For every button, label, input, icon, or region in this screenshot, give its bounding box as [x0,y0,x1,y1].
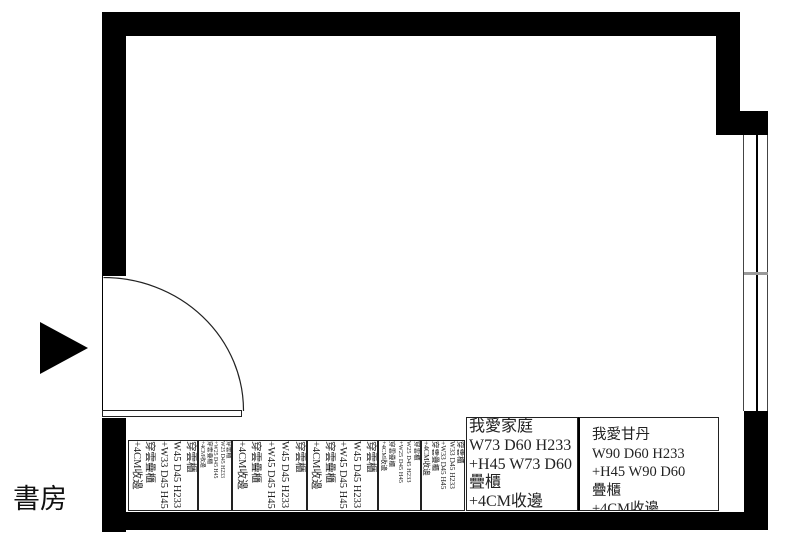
cabinet-label-line: +W25 D45 H45 [212,441,218,510]
cabinet-label-line: +4CM收邊 [422,441,430,510]
cabinet-label-line: +4CM收邊 [469,493,577,511]
cabinet-label-line: +H45 W73 D60 [469,456,577,475]
door-swing-arc [103,277,245,412]
cabinet-label-line: +H45 W90 D60 [592,463,718,482]
cabinet-label-line: 穿雲疊櫃 [322,441,336,510]
cabinet-box-5: 穿雲櫃 W25 D45 H233 +W25 D45 H45 穿雲疊櫃 +4CM收… [378,440,421,511]
cabinet-label-line: 穿雲櫃 [291,441,306,510]
wall-bottom [102,512,768,530]
cabinet-label-line: 穿雲櫃 [412,441,420,510]
cabinet-annotation: 穿雲櫃 W45 D45 H233 +W33 D45 H45 穿雲疊櫃 +4CM收… [129,441,197,510]
cabinet-label-line: 我愛甘丹 [592,426,718,445]
cabinet-label-line: W25 D45 H233 [404,441,412,510]
cabinet-box-8: 我愛甘丹 W90 D60 H233 +H45 W90 D60 疊櫃 +4CM收邊 [578,417,719,511]
cabinet-label-line: W25 D45 H233 [218,441,224,510]
door-leaf [102,410,242,417]
window-sill-divider [744,272,768,275]
cabinet-label-line: W45 D45 H233 [277,441,292,510]
cabinet-label-line: 穿雲疊櫃 [248,441,263,510]
cabinet-label-line: +4CM收邊 [199,441,205,510]
cabinet-label-line: +4CM收邊 [308,441,322,510]
wall-right-lower [744,411,768,530]
cabinet-label-line: 穿雲疊櫃 [205,441,211,510]
cabinet-label-line: +W33 D45 H45 [439,441,447,510]
cabinet-label-line: 穿雲櫃 [183,441,197,510]
cabinet-label-line: +4CM收邊 [592,500,718,511]
cabinet-box-2: 穿雲櫃 W25 D45 H233 +W25 D45 H45 穿雲疊櫃 +4CM收… [198,440,232,511]
cabinet-label-line: 穿雲櫃 [363,441,377,510]
cabinet-label-line: 穿雲疊櫃 [387,441,395,510]
cabinet-label-line: 我愛家庭 [469,418,577,437]
floor-plan: 書房 穿雲櫃 W45 D45 H233 +W33 D45 H45 穿雲疊櫃 +4… [0,0,801,557]
cabinet-label-line: W45 D45 H233 [170,441,184,510]
cabinet-label-line: +W33 D45 H45 [156,441,170,510]
room-label: 書房 [13,477,67,516]
cabinet-label-line: W33 D45 H233 [447,441,455,510]
cabinet-label-line: +W25 D45 H45 [395,441,403,510]
wall-left-upper [102,36,126,276]
cabinet-box-3: 穿雲櫃 W45 D45 H233 +W45 D45 H45 穿雲疊櫃 +4CM收… [232,440,307,511]
cabinet-label-line: 穿雲櫃 [456,441,464,510]
cabinet-label-line: 疊櫃 [592,482,718,501]
cabinet-annotation: 穿雲櫃 W45 D45 H233 +W45 D45 H45 穿雲疊櫃 +4CM收… [233,441,306,510]
cabinet-annotation: 穿雲櫃 W45 D45 H233 +W45 D45 H45 穿雲疊櫃 +4CM收… [308,441,377,510]
cabinet-box-4: 穿雲櫃 W45 D45 H233 +W45 D45 H45 穿雲疊櫃 +4CM收… [307,440,378,511]
cabinet-label-line: +W45 D45 H45 [262,441,277,510]
cabinet-box-7: 我愛家庭 W73 D60 H233 +H45 W73 D60 疊櫃 +4CM收邊 [466,417,578,511]
cabinet-annotation: 穿雲櫃 W25 D45 H233 +W25 D45 H45 穿雲疊櫃 +4CM收… [199,441,231,510]
cabinet-label-line: 穿雲疊櫃 [143,441,157,510]
wall-top [102,12,740,36]
cabinet-box-6: 穿雲櫃 W33 D45 H233 +W33 D45 H45 穿雲疊櫃 +4CM收… [421,440,465,511]
cabinet-label-line: W45 D45 H233 [349,441,363,510]
cabinet-label-line: +W45 D45 H45 [336,441,350,510]
cabinet-label-line: 穿雲櫃 [225,441,231,510]
cabinet-label-line: +4CM收邊 [379,441,387,510]
cabinet-label-line: +4CM收邊 [129,441,143,510]
cabinet-annotation: 穿雲櫃 W33 D45 H233 +W33 D45 H45 穿雲疊櫃 +4CM收… [422,441,464,510]
wall-right-upper [716,36,740,135]
entry-arrow-icon [40,322,88,374]
cabinet-label-line: 穿雲疊櫃 [430,441,438,510]
cabinet-annotation: 穿雲櫃 W25 D45 H233 +W25 D45 H45 穿雲疊櫃 +4CM收… [379,441,420,510]
cabinet-label-line: 疊櫃 [469,474,577,493]
cabinet-box-1: 穿雲櫃 W45 D45 H233 +W33 D45 H45 穿雲疊櫃 +4CM收… [128,440,198,511]
cabinet-label-line: W73 D60 H233 [469,437,577,456]
wall-right-step [740,111,768,135]
cabinet-label-line: W90 D60 H233 [592,445,718,464]
cabinet-label-line: +4CM收邊 [233,441,248,510]
